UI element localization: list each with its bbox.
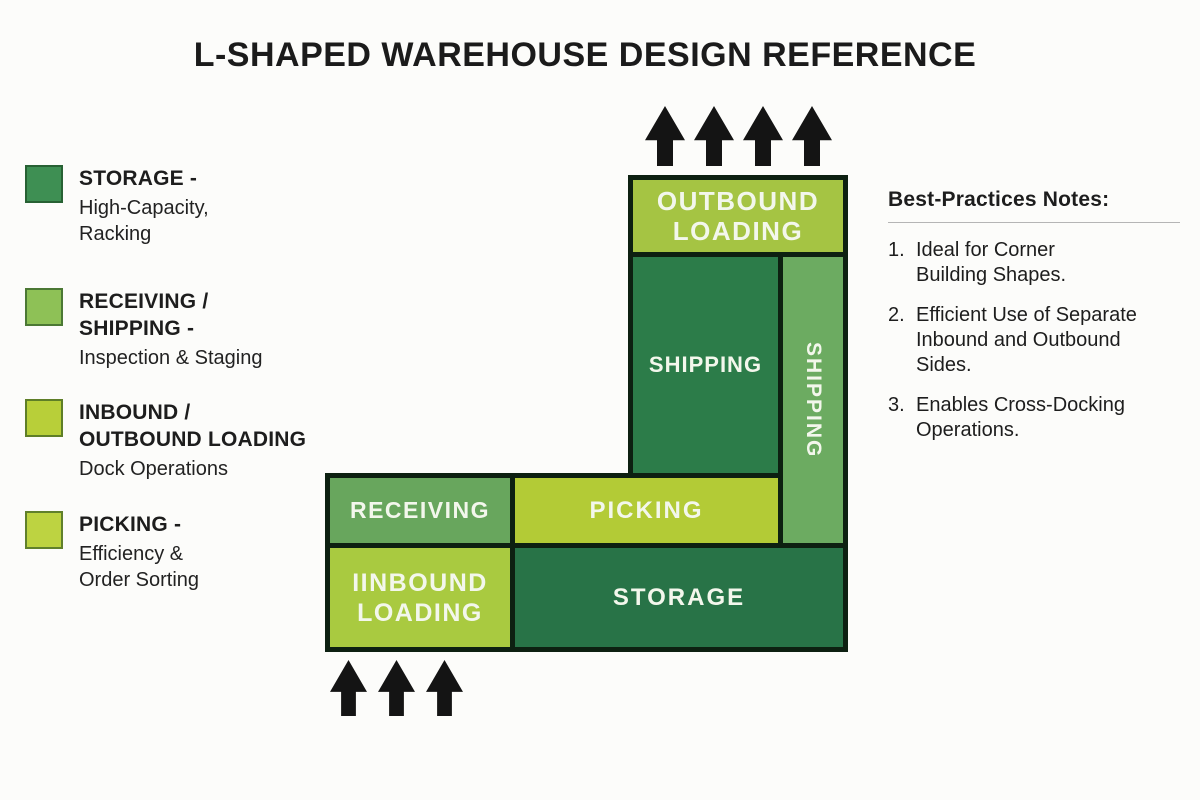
zone-inbound-loading: IINBOUND LOADING xyxy=(330,548,510,647)
zone-picking: PICKING xyxy=(515,478,778,543)
outbound-arrows xyxy=(645,106,832,166)
legend-item-picking: PICKING - Efficiency & Order Sorting xyxy=(25,511,325,593)
note-item: 2. Efficient Use of Separate Inbound and… xyxy=(888,303,1180,378)
note-text: Enables Cross-Docking Operations. xyxy=(916,393,1180,443)
inbound-swatch-icon xyxy=(25,399,63,437)
zone-shipping-corridor: SHIPPING xyxy=(783,257,843,543)
legend-item-subtitle: Dock Operations xyxy=(79,456,325,482)
zone-outbound-loading: OUTBOUND LOADING xyxy=(633,180,843,252)
receiving-swatch-icon xyxy=(25,288,63,326)
legend-item-subtitle: Efficiency & Order Sorting xyxy=(79,541,325,593)
legend-item-subtitle: High-Capacity, Racking xyxy=(79,195,325,247)
note-text: Ideal for Corner Building Shapes. xyxy=(916,238,1180,288)
note-item: 3. Enables Cross-Docking Operations. xyxy=(888,393,1180,443)
up-arrow-icon xyxy=(330,660,367,716)
legend-item-subtitle: Inspection & Staging xyxy=(79,345,325,371)
inbound-arrows xyxy=(330,660,463,716)
zone-storage: STORAGE xyxy=(515,548,843,647)
zone-shipping-corridor-label: SHIPPING xyxy=(801,342,825,458)
notes-divider xyxy=(888,222,1180,223)
storage-swatch-icon xyxy=(25,165,63,203)
up-arrow-icon xyxy=(792,106,832,166)
page-title: L-SHAPED WAREHOUSE DESIGN REFERENCE xyxy=(0,36,1170,75)
legend-item-storage: STORAGE - High-Capacity, Racking xyxy=(25,165,325,247)
legend-item-title: PICKING - xyxy=(79,511,325,538)
best-practices-notes: Best-Practices Notes: 1. Ideal for Corne… xyxy=(888,188,1180,443)
note-number: 3. xyxy=(888,393,916,443)
zone-shipping: SHIPPING xyxy=(633,257,778,473)
note-number: 1. xyxy=(888,238,916,288)
picking-swatch-icon xyxy=(25,511,63,549)
zone-receiving: RECEIVING xyxy=(330,478,510,543)
up-arrow-icon xyxy=(743,106,783,166)
legend-item-inbound-outbound: INBOUND / OUTBOUND LOADING Dock Operatio… xyxy=(25,399,325,482)
legend-item-title: STORAGE - xyxy=(79,165,325,192)
up-arrow-icon xyxy=(378,660,415,716)
note-text: Efficient Use of Separate Inbound and Ou… xyxy=(916,303,1180,378)
note-number: 2. xyxy=(888,303,916,378)
up-arrow-icon xyxy=(645,106,685,166)
legend-item-receiving-shipping: RECEIVING / SHIPPING - Inspection & Stag… xyxy=(25,288,325,371)
notes-heading: Best-Practices Notes: xyxy=(888,188,1180,212)
legend-item-title: INBOUND / OUTBOUND LOADING xyxy=(79,399,325,453)
legend-item-title: RECEIVING / SHIPPING - xyxy=(79,288,325,342)
up-arrow-icon xyxy=(694,106,734,166)
note-item: 1. Ideal for Corner Building Shapes. xyxy=(888,238,1180,288)
up-arrow-icon xyxy=(426,660,463,716)
